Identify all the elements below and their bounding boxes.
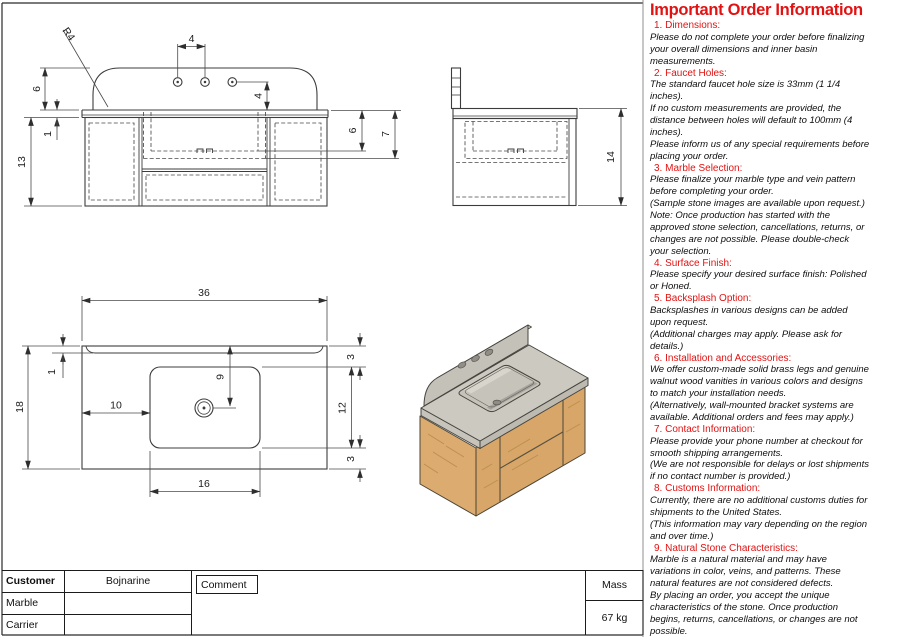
section-line: We offer custom-made solid brass legs an… — [648, 364, 903, 376]
section-line: upon request. — [648, 317, 903, 329]
section-line: (Sample stone images are available upon … — [648, 198, 903, 210]
section-line: walnut wood vanities in various colors a… — [648, 376, 903, 388]
section-line: available. Additional orders and fees ma… — [648, 412, 903, 424]
section-line: By placing an order, you accept the uniq… — [648, 590, 903, 602]
section-line: to match your installation needs. — [648, 388, 903, 400]
dim-basin-outer-depth: 7 — [380, 131, 392, 137]
section-line: Please inform us of any special requirem… — [648, 139, 903, 151]
drain-hole — [493, 400, 501, 405]
section-line: Please do not complete your order before… — [648, 32, 903, 44]
section-line: approved stone selection, cancellations,… — [648, 222, 903, 234]
section-line: (This information may vary depending on … — [648, 519, 903, 531]
front-view — [82, 68, 328, 206]
section-heading: 5. Backsplash Option: — [648, 293, 903, 305]
marble-label: Marble — [6, 592, 62, 614]
dim-basin-width: 16 — [198, 478, 210, 490]
section-heading: 7. Contact Information: — [648, 424, 903, 436]
dim-overall-height: 14 — [605, 151, 617, 163]
section-heading: 2. Faucet Holes: — [648, 68, 903, 80]
section-line: Please finalize your marble type and vei… — [648, 174, 903, 186]
section-line: details.) — [648, 341, 903, 353]
section-line: shipments to the United States. — [648, 507, 903, 519]
side-view — [452, 68, 578, 206]
dim-backsplash-height: 6 — [31, 86, 43, 92]
section-line: (We are not responsible for delays or lo… — [648, 459, 903, 471]
comment-label: Comment — [196, 575, 258, 594]
dim-counter-thickness: 1 — [42, 131, 54, 137]
section-heading: 1. Dimensions: — [648, 20, 903, 32]
dim-hole-to-top: 4 — [253, 93, 265, 99]
section-line: Currently, there are no additional custo… — [648, 495, 903, 507]
section-line: inches). — [648, 127, 903, 139]
section-line: Please provide your phone number at chec… — [648, 436, 903, 448]
section-line: begins, returns, cancellations, or chang… — [648, 614, 903, 626]
dim-drain-offset: 9 — [215, 374, 227, 380]
section-line: your overall dimensions and inner basin — [648, 44, 903, 56]
dim-basin-offset-left: 10 — [110, 400, 122, 412]
side-view-dimensions — [578, 109, 627, 206]
section-line: placing your order. — [648, 151, 903, 163]
mass-value: 67 kg — [586, 600, 643, 635]
section-line: distance between holes will default to 1… — [648, 115, 903, 127]
sheet-border — [2, 0, 643, 637]
section-line: (Alternatively, wall-mounted bracket sys… — [648, 400, 903, 412]
section-line: if no contact number is provided.) — [648, 471, 903, 483]
plan-view-dimensions — [22, 296, 366, 497]
info-panel-title: Important Order Information — [650, 1, 903, 20]
section-line: variations in color, veins, and patterns… — [648, 566, 903, 578]
carrier-value — [65, 614, 191, 635]
section-heading: 6. Installation and Accessories: — [648, 353, 903, 365]
section-line: measurements. — [648, 56, 903, 68]
section-line: or Honed. — [648, 281, 903, 293]
section-line: If no custom measurements are provided, … — [648, 103, 903, 115]
section-heading: 8. Customs Information: — [648, 483, 903, 495]
dim-overall-depth: 18 — [14, 401, 26, 413]
dim-front-clearance: 3 — [345, 456, 357, 462]
section-line: The standard faucet hole size is 33mm (1… — [648, 79, 903, 91]
dim-overall-width: 36 — [198, 287, 210, 299]
dim-backsplash-thickness: 1 — [46, 369, 58, 375]
dim-corner-radius: R4 — [60, 25, 78, 43]
dim-cabinet-height: 13 — [16, 156, 28, 168]
dim-basin-inner-depth: 6 — [347, 127, 359, 133]
section-line: inches). — [648, 91, 903, 103]
mass-label: Mass — [586, 570, 643, 600]
customer-value: Bojnarine — [65, 570, 191, 592]
customer-label: Customer — [6, 570, 62, 592]
dim-basin-depth: 12 — [337, 402, 349, 414]
section-line: (Additional charges may apply. Please as… — [648, 329, 903, 341]
engineering-drawing: R4 4 4 6 1 13 6 7 — [0, 0, 645, 637]
section-line: before completing your order. — [648, 186, 903, 198]
section-line: Please specify your desired surface fini… — [648, 269, 903, 281]
info-sections: 1. Dimensions:Please do not complete you… — [648, 20, 903, 637]
section-line: characteristics of the stone. Once produ… — [648, 602, 903, 614]
section-line: natural features are not considered defe… — [648, 578, 903, 590]
section-heading: 9. Natural Stone Characteristics: — [648, 543, 903, 555]
section-line: Marble is a natural material and may hav… — [648, 554, 903, 566]
section-line: smooth shipping arrangements. — [648, 448, 903, 460]
dim-back-clearance: 3 — [345, 354, 357, 360]
marble-value — [65, 592, 191, 614]
section-line: your selection. — [648, 246, 903, 258]
section-heading: 4. Surface Finish: — [648, 258, 903, 270]
section-heading: 3. Marble Selection: — [648, 163, 903, 175]
section-line: changes are not possible. Please double-… — [648, 234, 903, 246]
drawing-sheet: R4 4 4 6 1 13 6 7 — [0, 0, 903, 637]
info-panel: Important Order Information 1. Dimension… — [644, 0, 903, 637]
isometric-view — [420, 325, 588, 516]
section-line: and over time.) — [648, 531, 903, 543]
section-line: possible. — [648, 626, 903, 637]
plan-view-dim-labels: 36 1 18 10 9 12 3 3 16 — [14, 287, 357, 490]
carrier-label: Carrier — [6, 614, 62, 635]
dim-hole-spacing: 4 — [189, 33, 195, 45]
section-line: Backsplashes in various designs can be a… — [648, 305, 903, 317]
section-line: Note: Once production has started with t… — [648, 210, 903, 222]
